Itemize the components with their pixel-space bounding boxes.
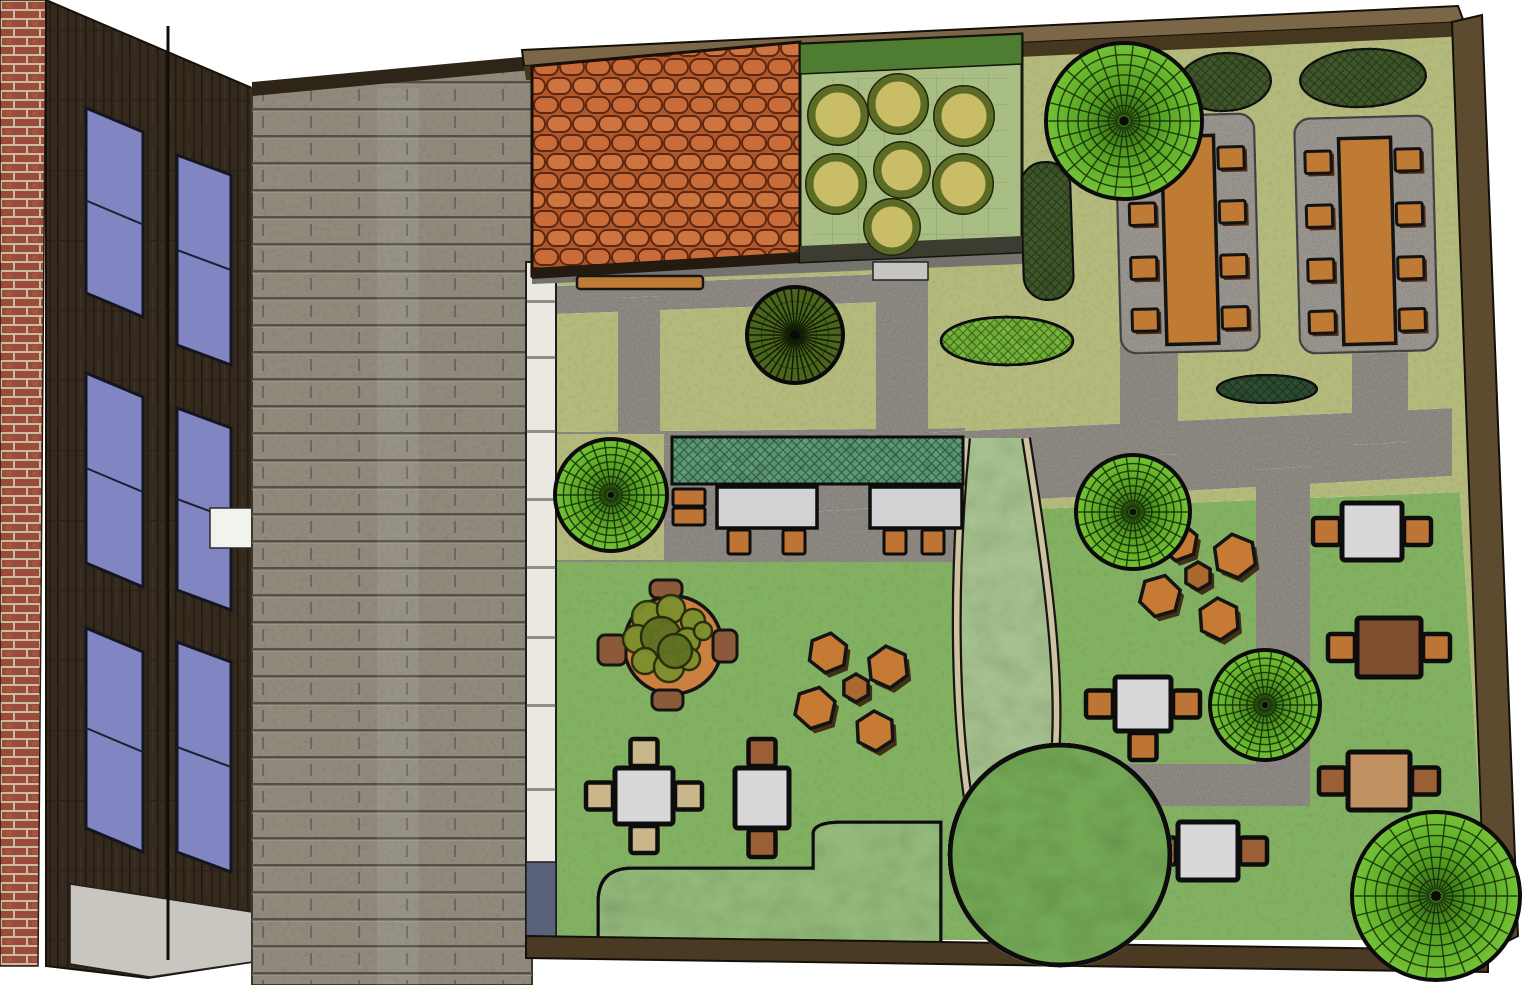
deck-seam	[377, 88, 419, 985]
wall-joint	[526, 566, 556, 569]
round-table	[933, 154, 993, 214]
window	[86, 628, 143, 852]
tree-canopy-mid-left	[555, 439, 667, 551]
bench	[577, 276, 703, 289]
bench-seat	[728, 530, 750, 554]
bench-seat-stack	[673, 489, 705, 506]
round-table	[934, 86, 994, 146]
path-vertical-4	[1352, 343, 1408, 445]
garden-wall-left-dark	[526, 862, 556, 942]
tree-canopy-mid-right	[1076, 455, 1190, 569]
bench-table-2	[870, 487, 962, 528]
window	[177, 642, 231, 872]
hedge-pond	[1217, 375, 1317, 403]
roof-terracotta	[532, 42, 800, 276]
wall-notch	[210, 508, 252, 548]
tree-canopy-east	[1210, 650, 1320, 760]
tree-canopy-se	[1352, 812, 1520, 980]
pergola-step	[873, 262, 928, 280]
bench-seat	[884, 530, 906, 554]
brick-column	[0, 0, 46, 966]
wall-joint	[526, 430, 556, 433]
wall-joint	[526, 498, 556, 501]
wall-joint	[526, 788, 556, 791]
tree-umbrella	[747, 287, 843, 383]
wall-joint	[526, 636, 556, 639]
scene-svg	[0, 0, 1531, 985]
bench-seat	[783, 530, 805, 554]
round-table	[808, 85, 868, 145]
tree-canopy-ne	[1046, 43, 1202, 199]
round-table	[864, 199, 920, 255]
picnic-area-2	[1294, 115, 1438, 354]
round-table	[868, 74, 928, 134]
window	[177, 155, 231, 365]
site-plan-canvas	[0, 0, 1531, 985]
wall-joint	[526, 704, 556, 707]
window	[86, 373, 143, 587]
round-table	[874, 142, 930, 198]
bench-table-1	[717, 487, 817, 528]
wall-joint	[526, 300, 556, 303]
bench-seat	[922, 530, 944, 554]
hedge-bed-teal	[672, 437, 963, 484]
scene-layers	[0, 0, 1520, 985]
tree-large-center	[950, 745, 1170, 965]
round-table	[806, 154, 866, 214]
path-vertical-3	[1120, 337, 1178, 457]
garden-wall-left	[526, 262, 556, 942]
wall-joint	[526, 356, 556, 359]
window	[86, 108, 143, 317]
hedge-column	[1020, 161, 1075, 301]
hedge-oval-bright	[941, 317, 1073, 365]
bench-seat-stack	[673, 508, 705, 525]
path-vertical-2	[876, 266, 928, 456]
